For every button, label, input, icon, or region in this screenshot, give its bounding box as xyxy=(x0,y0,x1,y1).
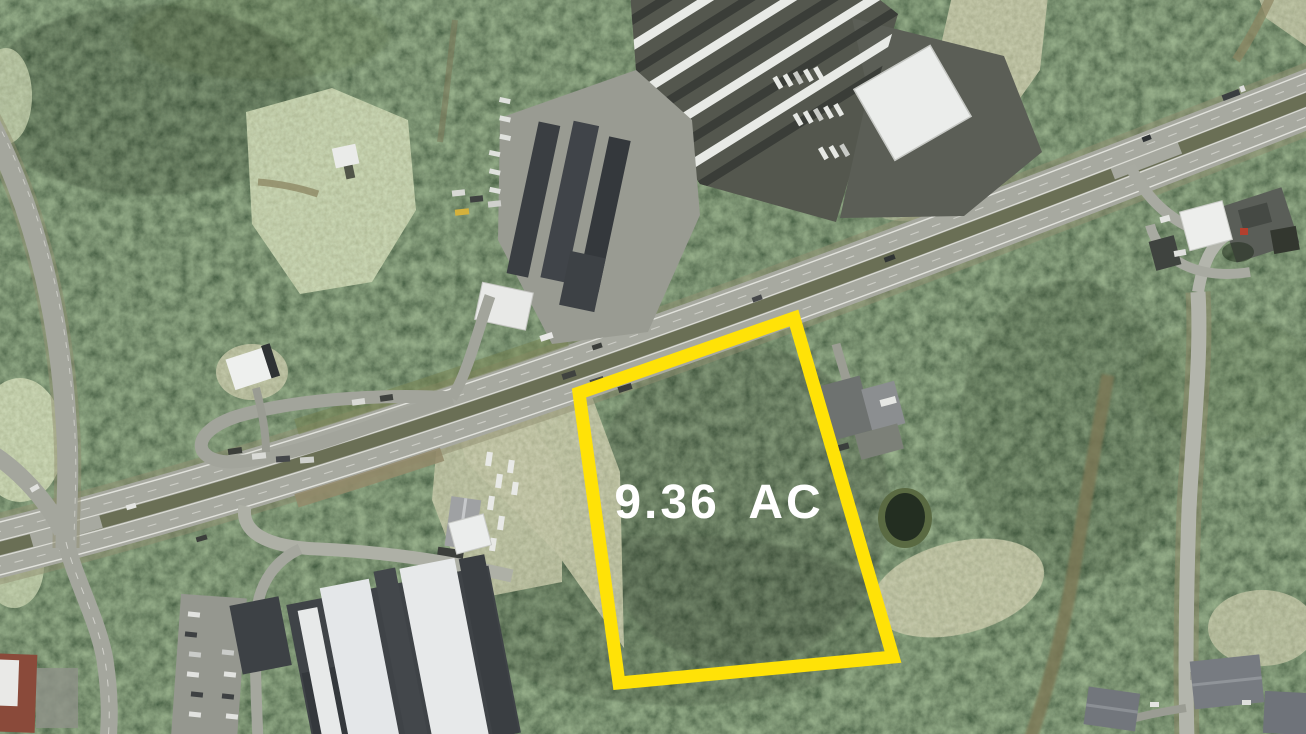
tree xyxy=(1222,242,1254,262)
house xyxy=(1190,654,1265,709)
house xyxy=(1263,691,1306,734)
vehicle xyxy=(1242,700,1251,705)
corner-pavement xyxy=(36,668,78,728)
parcel-acreage-label: 9.36 AC xyxy=(614,476,823,529)
vehicle xyxy=(1240,228,1248,235)
house xyxy=(1083,687,1140,732)
vehicle xyxy=(1150,702,1159,707)
aerial-photo: 9.36 AC xyxy=(0,0,1306,734)
red-roof-building xyxy=(0,653,37,732)
satellite-scene: 9.36 AC xyxy=(0,0,1306,734)
pond xyxy=(885,493,925,541)
business-dark-building xyxy=(1270,226,1300,254)
